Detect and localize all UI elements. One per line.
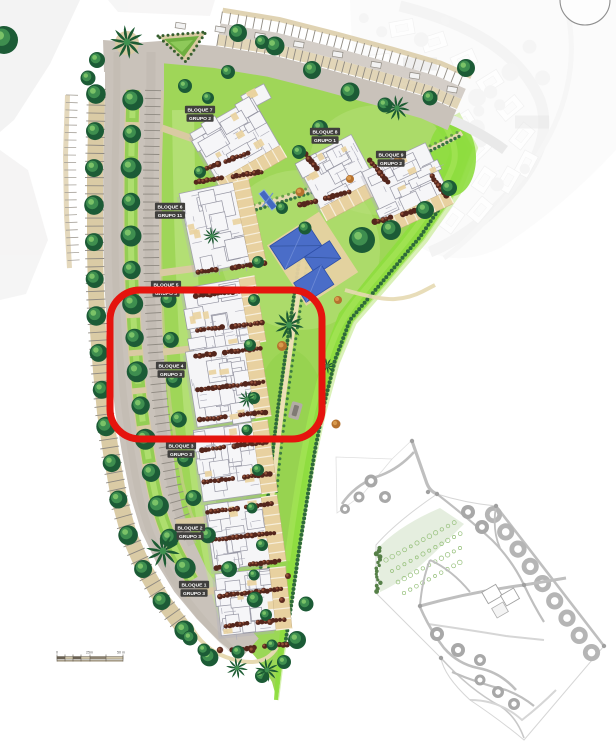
- svg-text:25m: 25m: [86, 651, 93, 655]
- svg-text:50 m: 50 m: [117, 651, 125, 655]
- svg-text:BLOQUE 8: BLOQUE 8: [312, 130, 337, 136]
- svg-text:GRUPO 3: GRUPO 3: [179, 534, 201, 540]
- svg-text:BLOQUE 3: BLOQUE 3: [168, 444, 193, 450]
- svg-text:BLOQUE 4: BLOQUE 4: [158, 364, 183, 370]
- svg-text:GRUPO 11: GRUPO 11: [158, 213, 183, 219]
- svg-text:BLOQUE 7: BLOQUE 7: [187, 108, 212, 114]
- svg-text:GRUPO 2: GRUPO 2: [380, 161, 402, 167]
- svg-text:GRUPO 2: GRUPO 2: [189, 116, 211, 122]
- svg-text:BLOQUE 9: BLOQUE 9: [378, 153, 403, 159]
- svg-text:0: 0: [56, 651, 58, 655]
- svg-text:BLOQUE 6: BLOQUE 6: [157, 205, 182, 211]
- svg-text:GRUPO 1: GRUPO 1: [314, 138, 336, 144]
- svg-text:GRUPO 3: GRUPO 3: [183, 591, 205, 597]
- svg-text:BLOQUE 1: BLOQUE 1: [181, 583, 206, 589]
- svg-text:GRUPO 3: GRUPO 3: [160, 372, 182, 378]
- svg-text:GRUPO 3: GRUPO 3: [170, 452, 192, 458]
- svg-text:BLOQUE 2: BLOQUE 2: [177, 526, 202, 532]
